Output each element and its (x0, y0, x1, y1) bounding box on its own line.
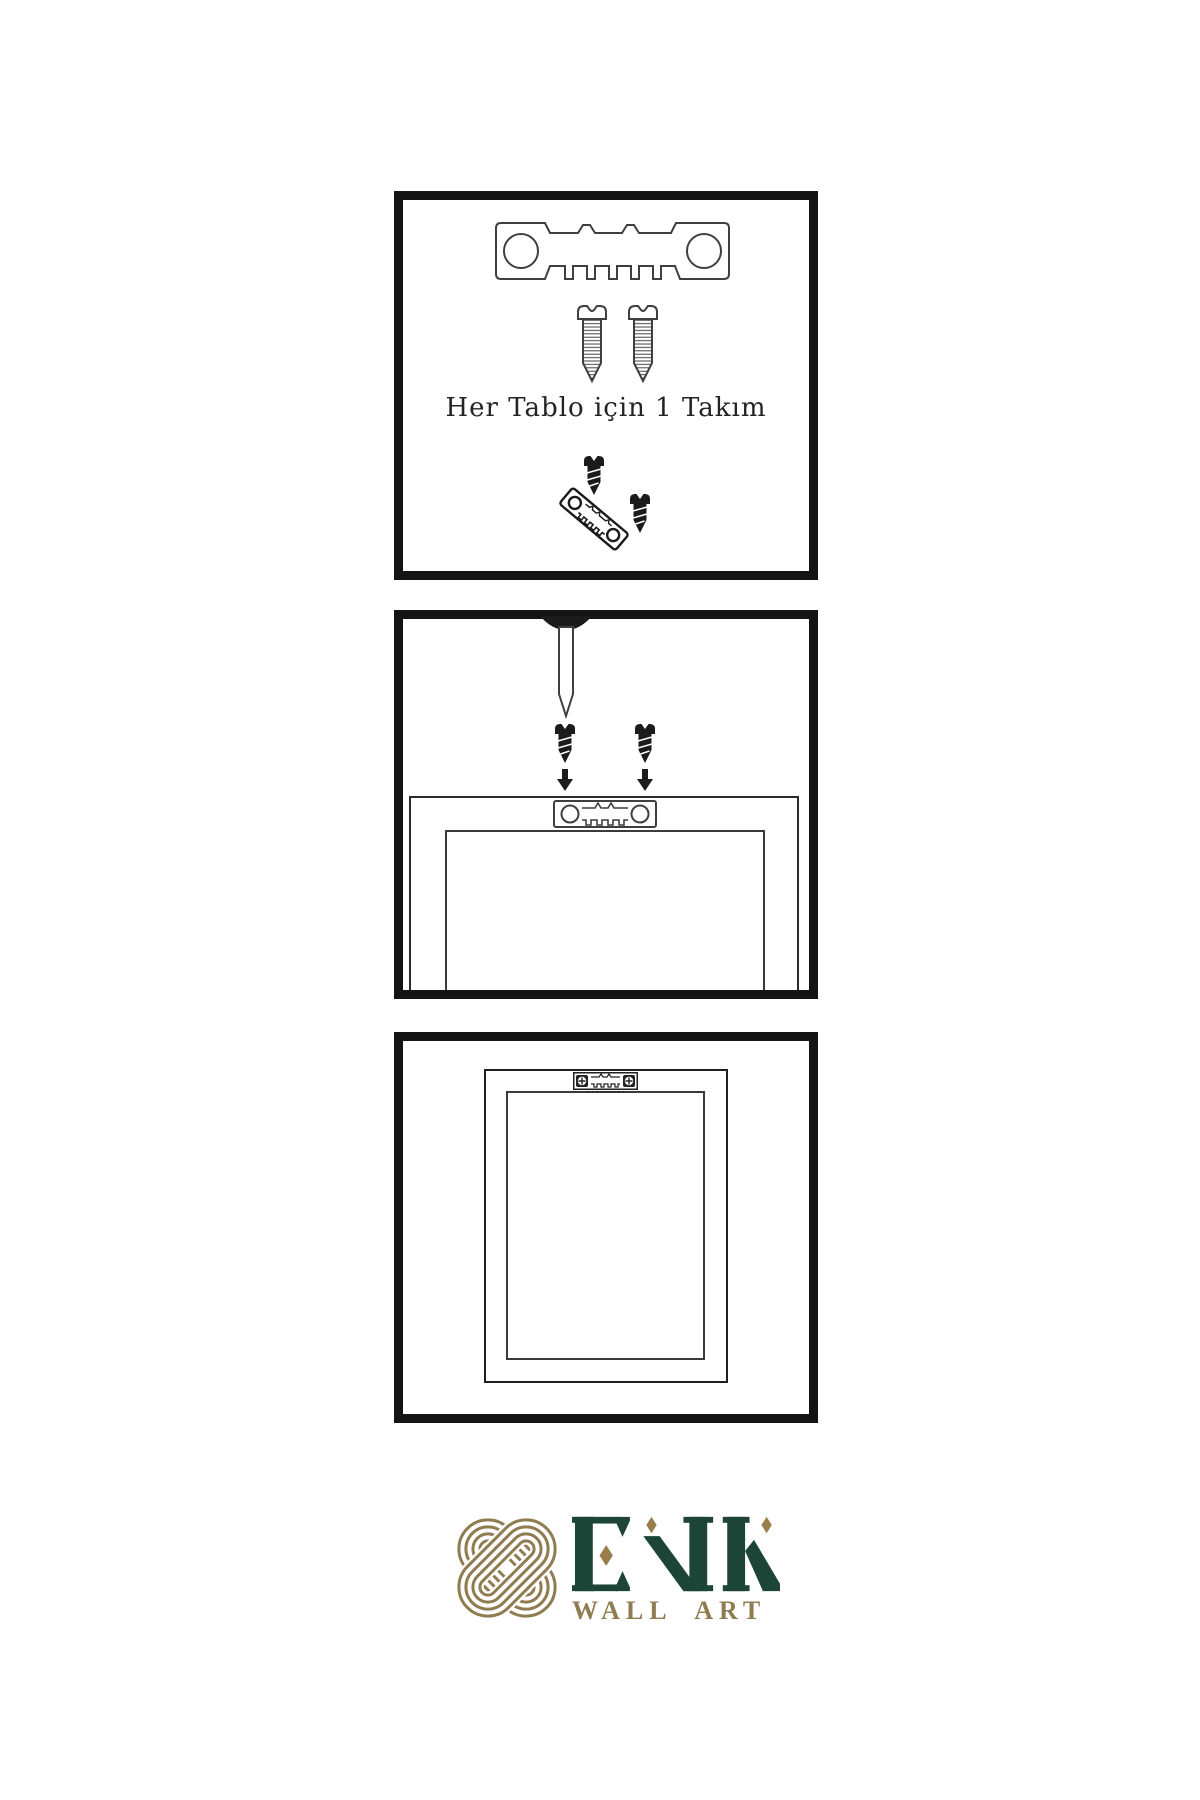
brand-wordmark: ENK (572, 1516, 780, 1592)
frame-back-inner (445, 830, 765, 990)
sawtooth-hanger-icon (495, 222, 730, 280)
instruction-sheet: Her Tablo için 1 Takım (0, 0, 1200, 1800)
panel-attach-hanger (394, 610, 818, 999)
brand-subtitle: WALL ART (572, 1596, 802, 1626)
screw-icon (575, 303, 609, 385)
sawtooth-hanger-plate-icon (553, 800, 657, 828)
frame-back-inner (506, 1091, 705, 1360)
kit-caption: Her Tablo için 1 Takım (403, 393, 809, 423)
dark-screw-icon (627, 491, 653, 537)
wall-nail-icon (540, 616, 592, 722)
down-arrow-icon (557, 769, 573, 791)
panel-hardware-kit: Her Tablo için 1 Takım (394, 191, 818, 580)
dark-screw-icon (632, 721, 658, 767)
mounted-hanger-icon (573, 1072, 638, 1093)
panel-mounted-frame (394, 1032, 818, 1423)
dark-screw-icon (581, 453, 607, 499)
knot-emblem-icon (441, 1502, 573, 1634)
dark-screw-icon (552, 721, 578, 767)
screw-icon (626, 303, 660, 385)
down-arrow-icon (637, 769, 653, 791)
